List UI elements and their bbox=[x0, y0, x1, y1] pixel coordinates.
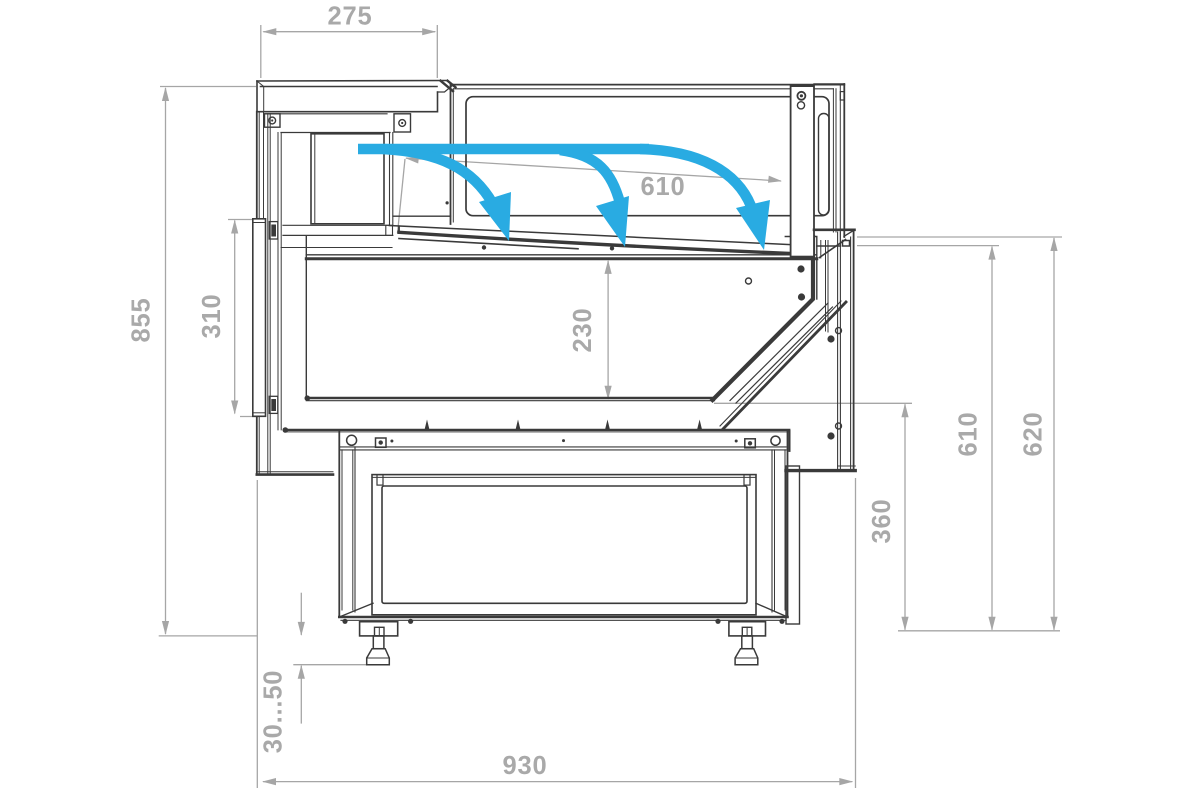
svg-text:930: 930 bbox=[503, 752, 548, 780]
svg-text:610: 610 bbox=[955, 412, 983, 457]
svg-text:230: 230 bbox=[569, 308, 597, 353]
svg-text:855: 855 bbox=[128, 298, 156, 343]
svg-text:620: 620 bbox=[1020, 412, 1048, 457]
svg-text:360: 360 bbox=[868, 499, 896, 544]
svg-text:30...50: 30...50 bbox=[260, 670, 288, 754]
svg-text:275: 275 bbox=[328, 3, 373, 31]
svg-text:310: 310 bbox=[198, 294, 226, 339]
svg-text:610: 610 bbox=[641, 173, 686, 201]
